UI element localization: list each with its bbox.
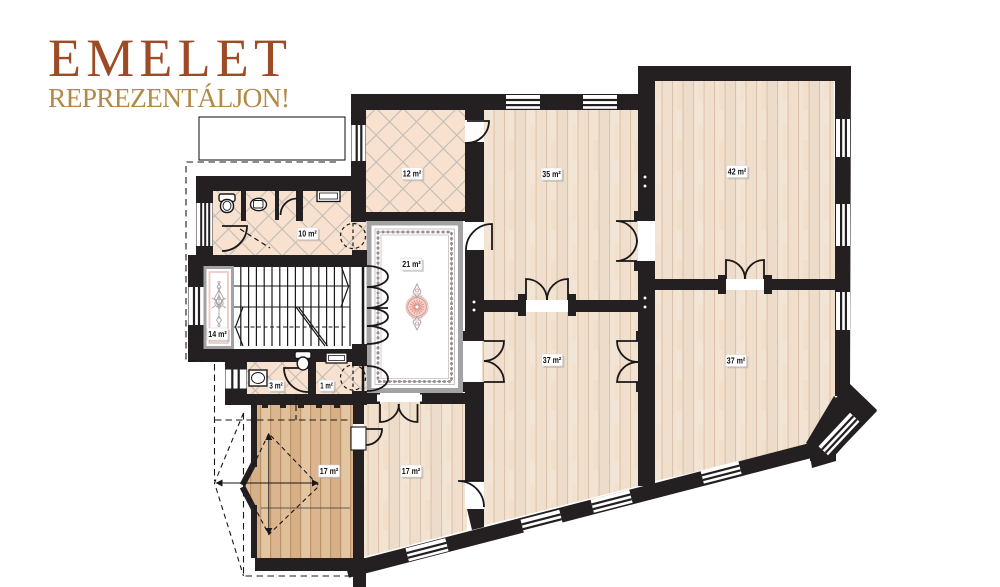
svg-text:37 m²: 37 m² bbox=[543, 355, 562, 365]
svg-text:10 m²: 10 m² bbox=[298, 229, 317, 239]
svg-text:17 m²: 17 m² bbox=[320, 466, 339, 476]
svg-text:3 m²: 3 m² bbox=[269, 381, 283, 391]
svg-text:42 m²: 42 m² bbox=[728, 167, 747, 177]
svg-text:REPREZENTÁLJON!: REPREZENTÁLJON! bbox=[48, 82, 291, 113]
svg-text:37 m²: 37 m² bbox=[727, 356, 746, 366]
svg-text:EMELET: EMELET bbox=[48, 28, 294, 88]
svg-text:21 m²: 21 m² bbox=[402, 259, 421, 269]
svg-text:17 m²: 17 m² bbox=[402, 466, 421, 476]
svg-text:1 m²: 1 m² bbox=[320, 381, 333, 391]
svg-text:12 m²: 12 m² bbox=[403, 169, 422, 179]
svg-text:35 m²: 35 m² bbox=[542, 169, 561, 179]
svg-text:14 m²: 14 m² bbox=[208, 329, 227, 339]
